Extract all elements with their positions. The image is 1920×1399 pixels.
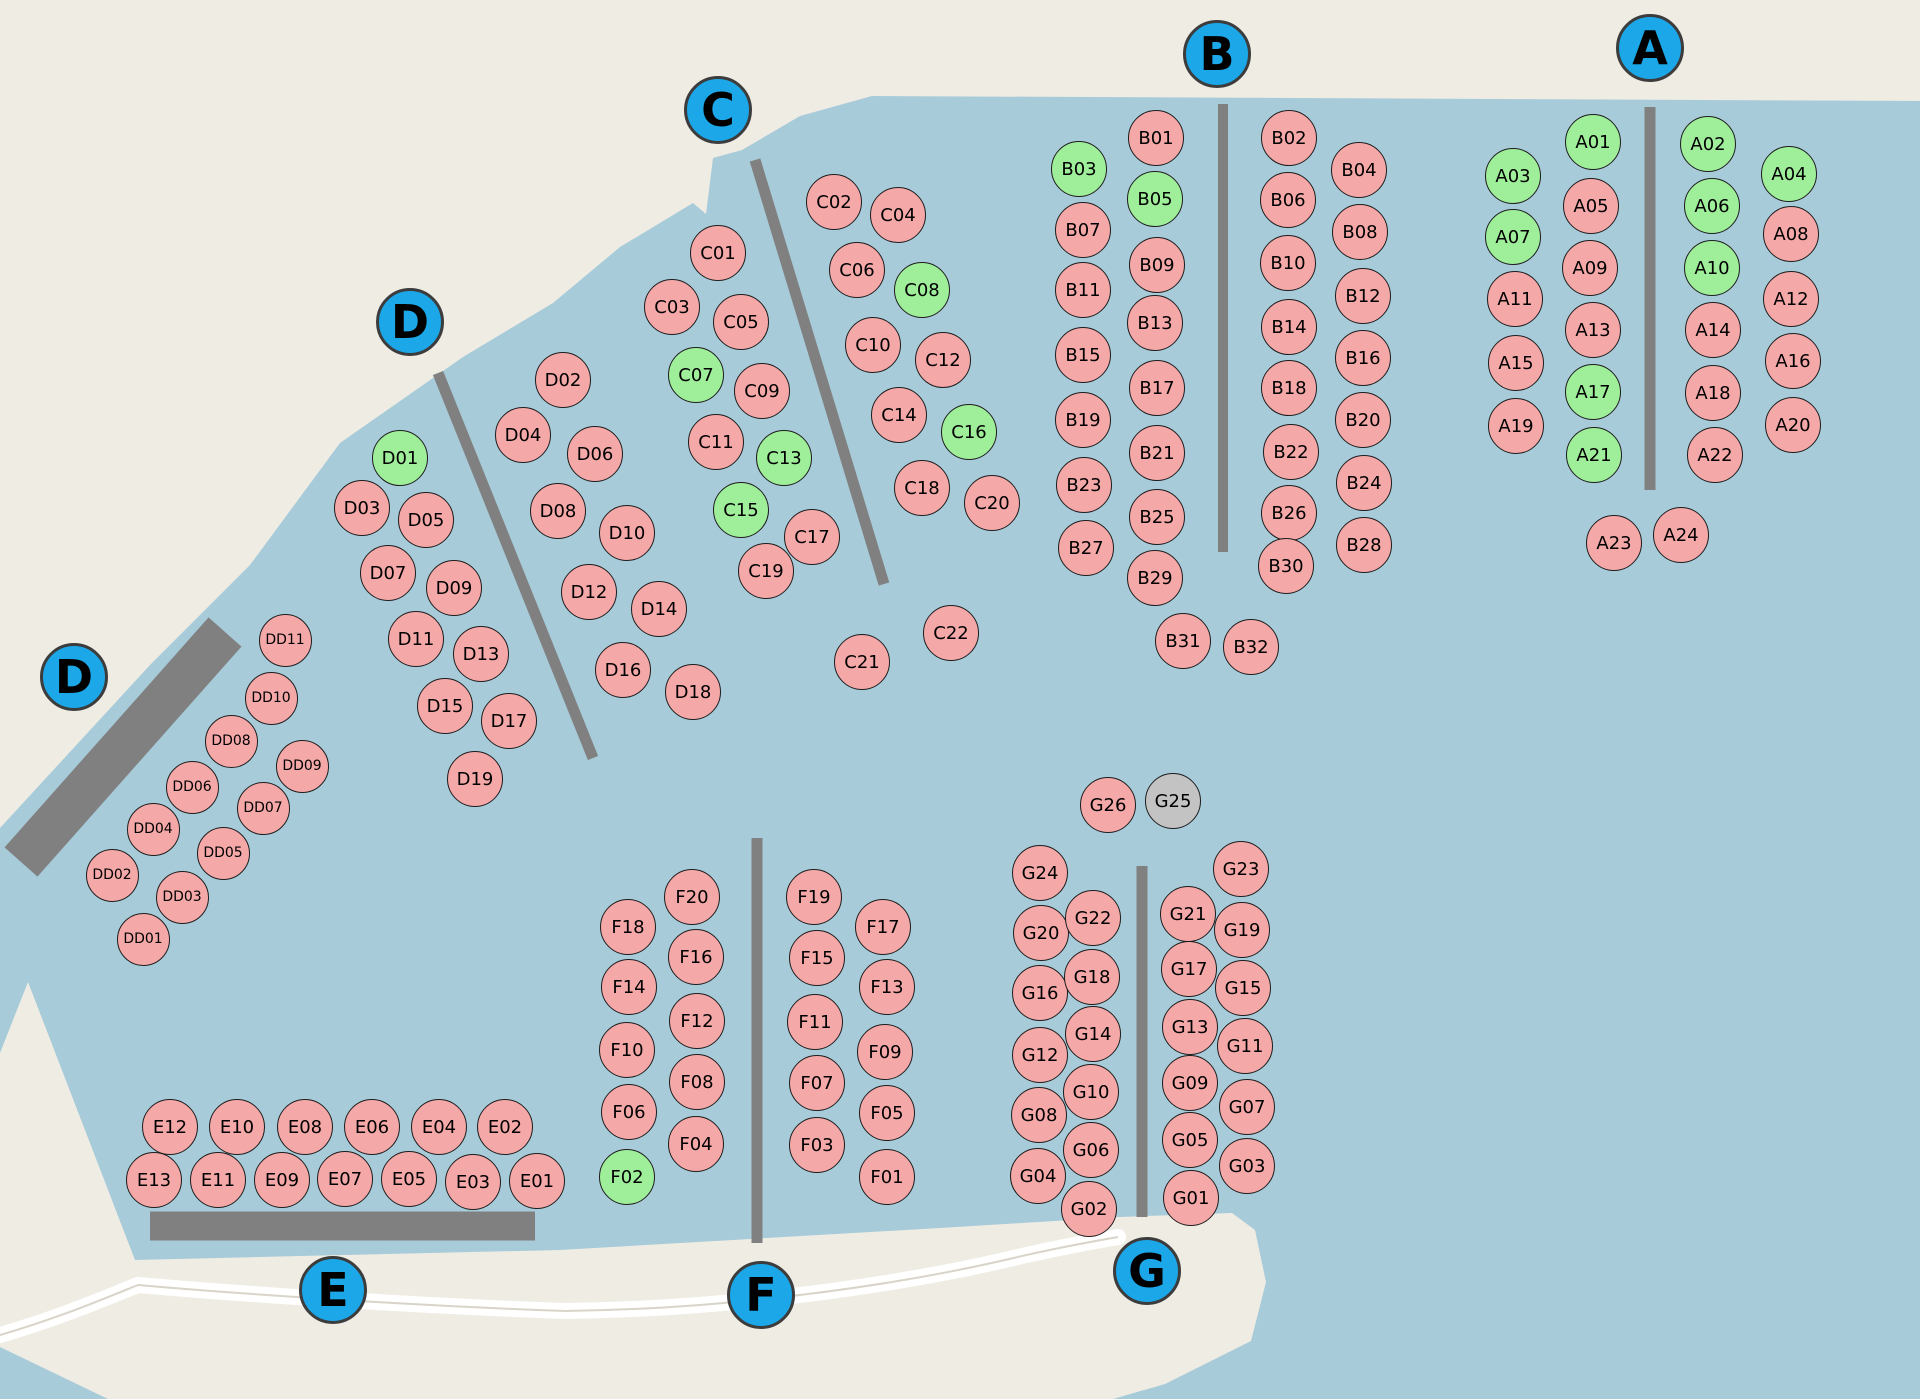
berth-C19[interactable]: C19: [738, 543, 794, 599]
berth-DD10[interactable]: DD10: [245, 672, 298, 725]
berth-B31[interactable]: B31: [1155, 613, 1211, 669]
berth-A13[interactable]: A13: [1565, 302, 1621, 358]
berth-C18[interactable]: C18: [894, 460, 950, 516]
berth-D04[interactable]: D04: [495, 407, 551, 463]
berth-C17[interactable]: C17: [784, 509, 840, 565]
berth-F04[interactable]: F04: [668, 1116, 724, 1172]
berth-C14[interactable]: C14: [871, 387, 927, 443]
berth-B05[interactable]: B05: [1127, 171, 1183, 227]
pier-badge-D: D: [40, 643, 108, 711]
berth-A08[interactable]: A08: [1763, 206, 1819, 262]
berth-D10[interactable]: D10: [599, 505, 655, 561]
berth-DD02[interactable]: DD02: [86, 849, 139, 902]
berth-G10[interactable]: G10: [1063, 1064, 1119, 1120]
berth-E12[interactable]: E12: [142, 1099, 198, 1155]
berth-F16[interactable]: F16: [668, 929, 724, 985]
berth-B30[interactable]: B30: [1258, 538, 1314, 594]
berth-E05[interactable]: E05: [381, 1151, 437, 1207]
berth-E06[interactable]: E06: [344, 1099, 400, 1155]
berth-D19[interactable]: D19: [447, 751, 503, 807]
berth-G18[interactable]: G18: [1064, 949, 1120, 1005]
berth-A24[interactable]: A24: [1653, 507, 1709, 563]
berth-D11[interactable]: D11: [388, 611, 444, 667]
berth-A21[interactable]: A21: [1566, 427, 1622, 483]
berth-F06[interactable]: F06: [601, 1084, 657, 1140]
berth-D18[interactable]: D18: [665, 664, 721, 720]
berth-C16[interactable]: C16: [941, 404, 997, 460]
berth-C04[interactable]: C04: [870, 187, 926, 243]
berth-C22[interactable]: C22: [923, 605, 979, 661]
berth-D09[interactable]: D09: [426, 560, 482, 616]
berth-G14[interactable]: G14: [1065, 1006, 1121, 1062]
berth-DD06[interactable]: DD06: [166, 761, 219, 814]
berth-B20[interactable]: B20: [1335, 392, 1391, 448]
berth-G01[interactable]: G01: [1163, 1170, 1219, 1226]
berth-D17[interactable]: D17: [481, 693, 537, 749]
berth-G09[interactable]: G09: [1162, 1055, 1218, 1111]
berth-G12[interactable]: G12: [1012, 1027, 1068, 1083]
berth-C20[interactable]: C20: [964, 475, 1020, 531]
berth-B27[interactable]: B27: [1058, 520, 1114, 576]
berth-A04[interactable]: A04: [1761, 146, 1817, 202]
berth-C12[interactable]: C12: [915, 332, 971, 388]
berth-A11[interactable]: A11: [1487, 271, 1543, 327]
berth-E02[interactable]: E02: [477, 1099, 533, 1155]
berth-B12[interactable]: B12: [1335, 268, 1391, 324]
berth-G21[interactable]: G21: [1160, 886, 1216, 942]
berth-F11[interactable]: F11: [787, 994, 843, 1050]
berth-A12[interactable]: A12: [1763, 271, 1819, 327]
berth-F15[interactable]: F15: [789, 930, 845, 986]
berth-A14[interactable]: A14: [1685, 302, 1741, 358]
berth-A18[interactable]: A18: [1685, 365, 1741, 421]
pier-badge-F: F: [727, 1261, 795, 1329]
berth-B04[interactable]: B04: [1331, 142, 1387, 198]
berth-C09[interactable]: C09: [734, 363, 790, 419]
berth-A02[interactable]: A02: [1680, 116, 1736, 172]
berth-E04[interactable]: E04: [411, 1099, 467, 1155]
berth-G25[interactable]: G25: [1145, 773, 1201, 829]
berth-B09[interactable]: B09: [1129, 237, 1185, 293]
berth-F10[interactable]: F10: [599, 1022, 655, 1078]
berth-E08[interactable]: E08: [277, 1099, 333, 1155]
berth-B01[interactable]: B01: [1128, 110, 1184, 166]
berth-C02[interactable]: C02: [806, 174, 862, 230]
berth-DD08[interactable]: DD08: [205, 715, 258, 768]
berth-B08[interactable]: B08: [1332, 204, 1388, 260]
berth-B18[interactable]: B18: [1261, 360, 1317, 416]
berth-E09[interactable]: E09: [254, 1152, 310, 1208]
berth-G05[interactable]: G05: [1162, 1112, 1218, 1168]
berth-B11[interactable]: B11: [1055, 262, 1111, 318]
berth-G07[interactable]: G07: [1219, 1079, 1275, 1135]
pier-badge-G: G: [1113, 1237, 1181, 1305]
berth-F14[interactable]: F14: [601, 959, 657, 1015]
berth-B07[interactable]: B07: [1055, 202, 1111, 258]
pier-badge-D: D: [376, 288, 444, 356]
berth-F09[interactable]: F09: [857, 1024, 913, 1080]
berth-G11[interactable]: G11: [1217, 1018, 1273, 1074]
berth-DD01[interactable]: DD01: [117, 913, 170, 966]
berth-F08[interactable]: F08: [669, 1054, 725, 1110]
berth-C21[interactable]: C21: [834, 634, 890, 690]
berth-F17[interactable]: F17: [855, 899, 911, 955]
berth-E11[interactable]: E11: [190, 1152, 246, 1208]
berth-D08[interactable]: D08: [530, 483, 586, 539]
berth-DD03[interactable]: DD03: [156, 871, 209, 924]
berth-G02[interactable]: G02: [1061, 1181, 1117, 1237]
berth-B03[interactable]: B03: [1051, 141, 1107, 197]
berth-D13[interactable]: D13: [453, 626, 509, 682]
berth-D12[interactable]: D12: [561, 564, 617, 620]
berth-B02[interactable]: B02: [1261, 110, 1317, 166]
berth-A22[interactable]: A22: [1687, 427, 1743, 483]
berth-B23[interactable]: B23: [1056, 457, 1112, 513]
berth-A06[interactable]: A06: [1684, 178, 1740, 234]
berth-B13[interactable]: B13: [1127, 295, 1183, 351]
berth-C10[interactable]: C10: [845, 317, 901, 373]
berth-DD11[interactable]: DD11: [259, 614, 312, 667]
berth-F02[interactable]: F02: [599, 1149, 655, 1205]
berth-F19[interactable]: F19: [786, 869, 842, 925]
berth-B24[interactable]: B24: [1336, 455, 1392, 511]
berth-B26[interactable]: B26: [1261, 485, 1317, 541]
berth-A16[interactable]: A16: [1765, 333, 1821, 389]
berth-F05[interactable]: F05: [859, 1085, 915, 1141]
pier-badge-E: E: [299, 1256, 367, 1324]
berth-B14[interactable]: B14: [1261, 299, 1317, 355]
pier-badge-A: A: [1616, 14, 1684, 82]
berth-E10[interactable]: E10: [209, 1099, 265, 1155]
berth-F01[interactable]: F01: [859, 1149, 915, 1205]
berth-B32[interactable]: B32: [1223, 619, 1279, 675]
berth-C01[interactable]: C01: [690, 225, 746, 281]
berth-F03[interactable]: F03: [789, 1117, 845, 1173]
berth-F13[interactable]: F13: [859, 959, 915, 1015]
berth-B17[interactable]: B17: [1129, 360, 1185, 416]
berth-G23[interactable]: G23: [1213, 841, 1269, 897]
berth-B15[interactable]: B15: [1055, 327, 1111, 383]
berth-G16[interactable]: G16: [1012, 965, 1068, 1021]
berth-D14[interactable]: D14: [631, 581, 687, 637]
berth-DD09[interactable]: DD09: [276, 740, 329, 793]
berth-A10[interactable]: A10: [1684, 240, 1740, 296]
berth-A07[interactable]: A07: [1485, 209, 1541, 265]
berth-C13[interactable]: C13: [756, 430, 812, 486]
berth-E13[interactable]: E13: [126, 1152, 182, 1208]
berth-A19[interactable]: A19: [1488, 398, 1544, 454]
berth-A01[interactable]: A01: [1565, 114, 1621, 170]
berth-A05[interactable]: A05: [1563, 178, 1619, 234]
berth-G03[interactable]: G03: [1219, 1138, 1275, 1194]
berth-A09[interactable]: A09: [1562, 240, 1618, 296]
berth-E03[interactable]: E03: [445, 1154, 501, 1210]
berth-B22[interactable]: B22: [1263, 424, 1319, 480]
berth-G15[interactable]: G15: [1215, 960, 1271, 1016]
berth-B10[interactable]: B10: [1260, 235, 1316, 291]
berth-G19[interactable]: G19: [1214, 902, 1270, 958]
berth-DD04[interactable]: DD04: [127, 803, 180, 856]
pier-badge-C: C: [684, 76, 752, 144]
berth-G26[interactable]: G26: [1080, 777, 1136, 833]
berth-A17[interactable]: A17: [1565, 364, 1621, 420]
berth-D05[interactable]: D05: [398, 492, 454, 548]
berth-D07[interactable]: D07: [360, 545, 416, 601]
berth-D01[interactable]: D01: [372, 430, 428, 486]
berth-D16[interactable]: D16: [595, 642, 651, 698]
berth-B29[interactable]: B29: [1127, 550, 1183, 606]
berth-DD07[interactable]: DD07: [237, 782, 290, 835]
pier-badge-B: B: [1183, 20, 1251, 88]
berth-B21[interactable]: B21: [1129, 425, 1185, 481]
berth-B06[interactable]: B06: [1260, 172, 1316, 228]
berth-F20[interactable]: F20: [664, 869, 720, 925]
berth-C11[interactable]: C11: [688, 414, 744, 470]
berth-D15[interactable]: D15: [417, 678, 473, 734]
berth-E07[interactable]: E07: [317, 1151, 373, 1207]
berth-A03[interactable]: A03: [1485, 148, 1541, 204]
berth-G06[interactable]: G06: [1063, 1122, 1119, 1178]
berth-B19[interactable]: B19: [1055, 392, 1111, 448]
berth-C07[interactable]: C07: [668, 347, 724, 403]
berth-D06[interactable]: D06: [567, 426, 623, 482]
berth-F12[interactable]: F12: [669, 993, 725, 1049]
berth-DD05[interactable]: DD05: [197, 827, 250, 880]
berth-A20[interactable]: A20: [1765, 397, 1821, 453]
berth-C06[interactable]: C06: [829, 242, 885, 298]
berth-C15[interactable]: C15: [713, 482, 769, 538]
berth-G24[interactable]: G24: [1012, 845, 1068, 901]
berth-C08[interactable]: C08: [894, 262, 950, 318]
berth-G22[interactable]: G22: [1065, 890, 1121, 946]
berth-B16[interactable]: B16: [1335, 330, 1391, 386]
berth-G08[interactable]: G08: [1011, 1087, 1067, 1143]
berth-G13[interactable]: G13: [1162, 999, 1218, 1055]
berth-F18[interactable]: F18: [600, 899, 656, 955]
berth-G04[interactable]: G04: [1010, 1148, 1066, 1204]
berth-B25[interactable]: B25: [1129, 489, 1185, 545]
berth-C03[interactable]: C03: [644, 279, 700, 335]
berth-D03[interactable]: D03: [334, 480, 390, 536]
berth-D02[interactable]: D02: [535, 352, 591, 408]
berth-G17[interactable]: G17: [1161, 941, 1217, 997]
berth-C05[interactable]: C05: [713, 294, 769, 350]
marina-berth-map: A01A02A03A04A05A06A07A08A09A10A11A12A13A…: [0, 0, 1920, 1399]
berth-G20[interactable]: G20: [1013, 905, 1069, 961]
berth-B28[interactable]: B28: [1336, 517, 1392, 573]
berth-A15[interactable]: A15: [1488, 335, 1544, 391]
berth-F07[interactable]: F07: [789, 1055, 845, 1111]
berth-A23[interactable]: A23: [1586, 515, 1642, 571]
berth-E01[interactable]: E01: [509, 1153, 565, 1209]
